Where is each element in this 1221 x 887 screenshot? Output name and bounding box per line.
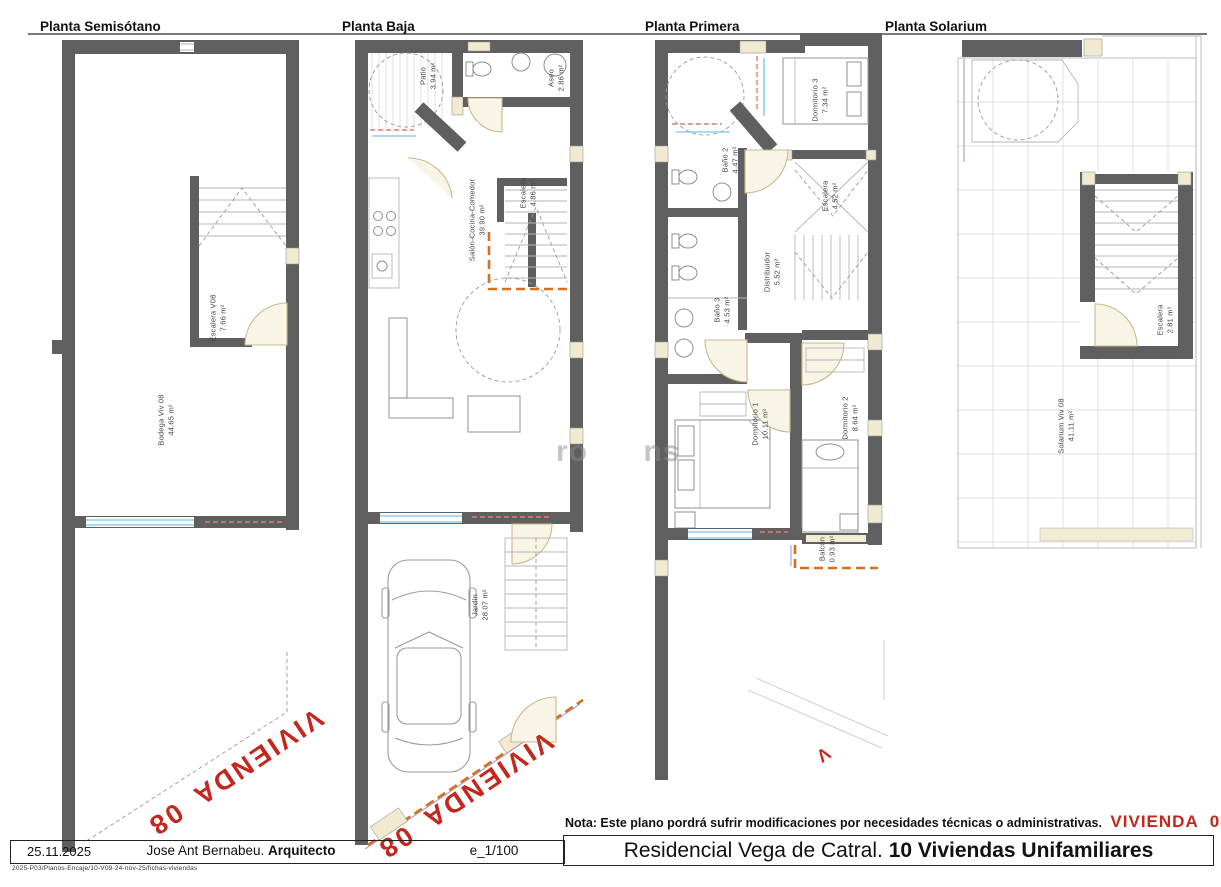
door-arc — [468, 98, 502, 132]
bidet-icon — [672, 266, 697, 280]
plan-solarium-drawing — [958, 36, 1201, 548]
titleblock-scale: e_1/100 — [439, 843, 549, 858]
project-subtitle: 10 Viviendas Unifamiliares — [889, 839, 1154, 863]
room-area: 5.52 m² — [772, 259, 782, 286]
room-label-balcon: Balcón 0.93 m² — [817, 536, 837, 563]
titleblock-project: Residencial Vega de Catral. 10 Viviendas… — [563, 835, 1214, 866]
architect-name: Jose Ant Bernabeu. — [146, 843, 264, 858]
skylight-outline — [972, 60, 1078, 142]
room-area: 4.52 m² — [830, 183, 840, 210]
architect-title: Arquitecto — [268, 843, 336, 858]
room-area: 39.90 m² — [477, 204, 487, 235]
room-label-patio: Patio 3.94 m² — [418, 63, 438, 90]
room-name: Aseo — [546, 69, 556, 87]
room-label-salon: Salón-Cocina-Comedor 39.90 m² — [467, 179, 487, 261]
room-name: Escalera — [820, 181, 830, 212]
room-label-escalera-solarium: Escalera 2.81 m² — [1155, 305, 1175, 336]
room-area: 4.47 m² — [730, 147, 740, 174]
plan-title-semisotano: Planta Semisótano — [40, 19, 161, 34]
titleblock-date: 25.11.2025 — [27, 844, 91, 859]
room-area: 4.53 m² — [722, 297, 732, 324]
room-name: Jardín — [470, 594, 480, 616]
titleblock-architect: Jose Ant Bernabeu. Arquitecto — [131, 843, 351, 858]
door-arc — [512, 524, 552, 564]
sink-icon — [675, 339, 693, 357]
room-area: 44.65 m² — [166, 404, 176, 435]
dashed-circle-table — [456, 278, 560, 382]
room-name: Bodega Viv 08 — [156, 394, 166, 445]
toilet-icon — [672, 170, 697, 184]
room-name: Solarium Viv 08 — [1056, 398, 1066, 453]
door-arc — [802, 343, 844, 385]
door-arc — [408, 158, 452, 198]
note-text: Nota: Este plano pordrá sufrir modificac… — [565, 816, 1102, 830]
toilet-icon — [466, 62, 491, 76]
room-name: Dormitorio 3 — [810, 78, 820, 121]
sink-icon — [713, 183, 731, 201]
room-label-escalera-primera: Escalera 4.52 m² — [820, 181, 840, 212]
room-name: Baño 2 — [720, 148, 730, 173]
solarium-bench — [1040, 528, 1193, 541]
plan-semisotano-drawing — [52, 40, 299, 852]
titleblock-left: 25.11.2025 Jose Ant Bernabeu. Arquitecto… — [10, 840, 565, 864]
room-name: Balcón — [817, 537, 827, 561]
watermark-fragment: ro — [556, 435, 588, 469]
room-name: Distribuidor — [762, 252, 772, 292]
room-name: Patio — [418, 67, 428, 85]
room-name: Salón-Cocina-Comedor — [467, 179, 477, 261]
boundary-faint — [748, 640, 888, 748]
kitchen-counter — [369, 178, 399, 288]
room-label-escalera-baja: Escalera 4.86 m² — [518, 178, 538, 209]
room-area: 0.93 m² — [827, 536, 837, 563]
room-area: 41.11 m² — [1066, 411, 1076, 442]
sink-icon — [512, 53, 530, 71]
room-label-dormitorio2: Dormitorio 2 8.64 m² — [840, 396, 860, 439]
room-label-distribuidor: Distribuidor 5.52 m² — [762, 252, 782, 292]
room-area: 2.81 m² — [1165, 307, 1175, 334]
room-name: Escalera — [518, 178, 528, 209]
room-name: Escalera — [1155, 305, 1165, 336]
sink-icon — [675, 309, 693, 327]
room-label-bano2: Baño 2 4.47 m² — [720, 147, 740, 174]
door-arc — [245, 303, 287, 345]
plan-baja-drawing — [355, 40, 583, 849]
plan-title-solarium: Planta Solarium — [885, 19, 987, 34]
room-label-dormitorio3: Dormitorio 3 7.34 m² — [810, 78, 830, 121]
room-area: 4.86 m² — [528, 180, 538, 207]
room-label-jardin: Jardín 28.07 m² — [470, 589, 490, 620]
room-name: Dormitorio 1 — [750, 402, 760, 445]
room-name: Escalera V08 — [208, 294, 218, 341]
room-area: 2.86 m² — [556, 65, 566, 92]
toilet-icon — [672, 234, 697, 248]
plan-title-primera: Planta Primera — [645, 19, 740, 34]
titleblock-file-ref: 2025-P03/Planos-Encaje/10-V09-24-nov-25/… — [12, 865, 197, 872]
dashed-circle-skylight — [978, 60, 1058, 140]
room-area: 28.07 m² — [480, 589, 490, 620]
stairs — [782, 150, 876, 300]
room-label-solarium: Solarium Viv 08 41.11 m² — [1056, 398, 1076, 453]
room-label-escalera-v08: Escalera V08 7.66 m² — [208, 294, 228, 341]
room-label-aseo: Aseo 2.86 m² — [546, 65, 566, 92]
room-label-bodega: Bodega Viv 08 44.65 m² — [156, 394, 176, 445]
plan-linework — [0, 0, 1221, 887]
plan-title-baja: Planta Baja — [342, 19, 415, 34]
room-area: 7.66 m² — [218, 305, 228, 332]
car-drawing — [382, 560, 476, 772]
room-area: 10.11 m² — [760, 409, 770, 440]
room-name: Baño 3 — [712, 298, 722, 323]
door-arc — [745, 150, 788, 193]
note-line: Nota: Este plano pordrá sufrir modificac… — [565, 812, 1197, 832]
room-area: 8.64 m² — [850, 405, 860, 432]
room-area: 7.34 m² — [820, 87, 830, 114]
sofa — [389, 318, 520, 432]
stairs — [1080, 172, 1193, 359]
note-vivienda: VIVIENDA 08 — [1110, 812, 1221, 831]
room-label-bano3: Baño 3 4.53 m² — [712, 297, 732, 324]
room-area: 3.94 m² — [428, 63, 438, 90]
floor-plan-sheet: Planta Semisótano Planta Baja Planta Pri… — [0, 0, 1221, 887]
project-name: Residencial Vega de Catral. — [624, 839, 883, 863]
room-name: Dormitorio 2 — [840, 396, 850, 439]
watermark-fragment: ns — [643, 435, 680, 469]
room-label-dormitorio1: Dormitorio 1 10.11 m² — [750, 402, 770, 445]
